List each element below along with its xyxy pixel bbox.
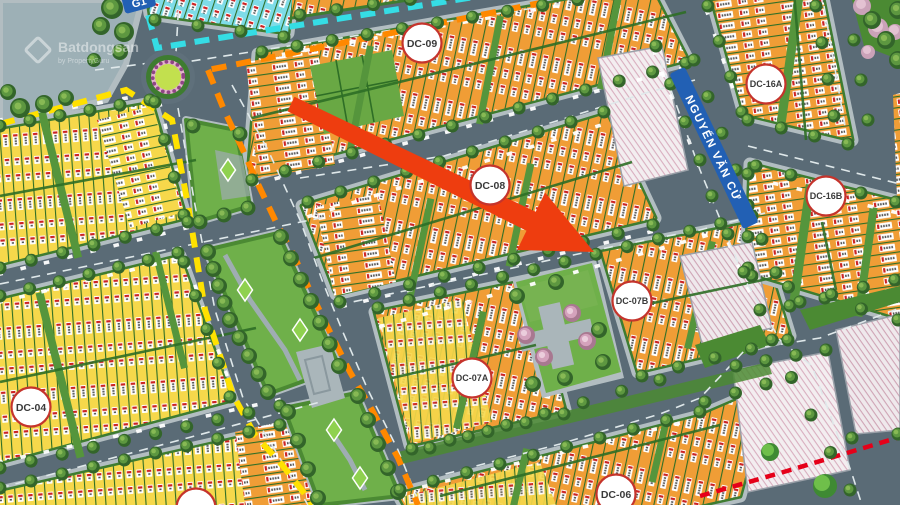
svg-text:DC-09: DC-09 [407, 38, 438, 50]
svg-text:DC-06: DC-06 [601, 489, 632, 501]
svg-text:by PropertyGuru: by PropertyGuru [58, 58, 109, 65]
svg-text:DC-08: DC-08 [475, 180, 506, 192]
svg-text:DC-16A: DC-16A [750, 79, 783, 89]
svg-text:Batdongsan: Batdongsan [58, 39, 139, 55]
svg-text:DC-07B: DC-07B [616, 296, 649, 306]
svg-text:DC-16B: DC-16B [810, 191, 843, 201]
svg-text:DC-04: DC-04 [16, 402, 47, 414]
svg-text:DC-07A: DC-07A [456, 373, 489, 383]
